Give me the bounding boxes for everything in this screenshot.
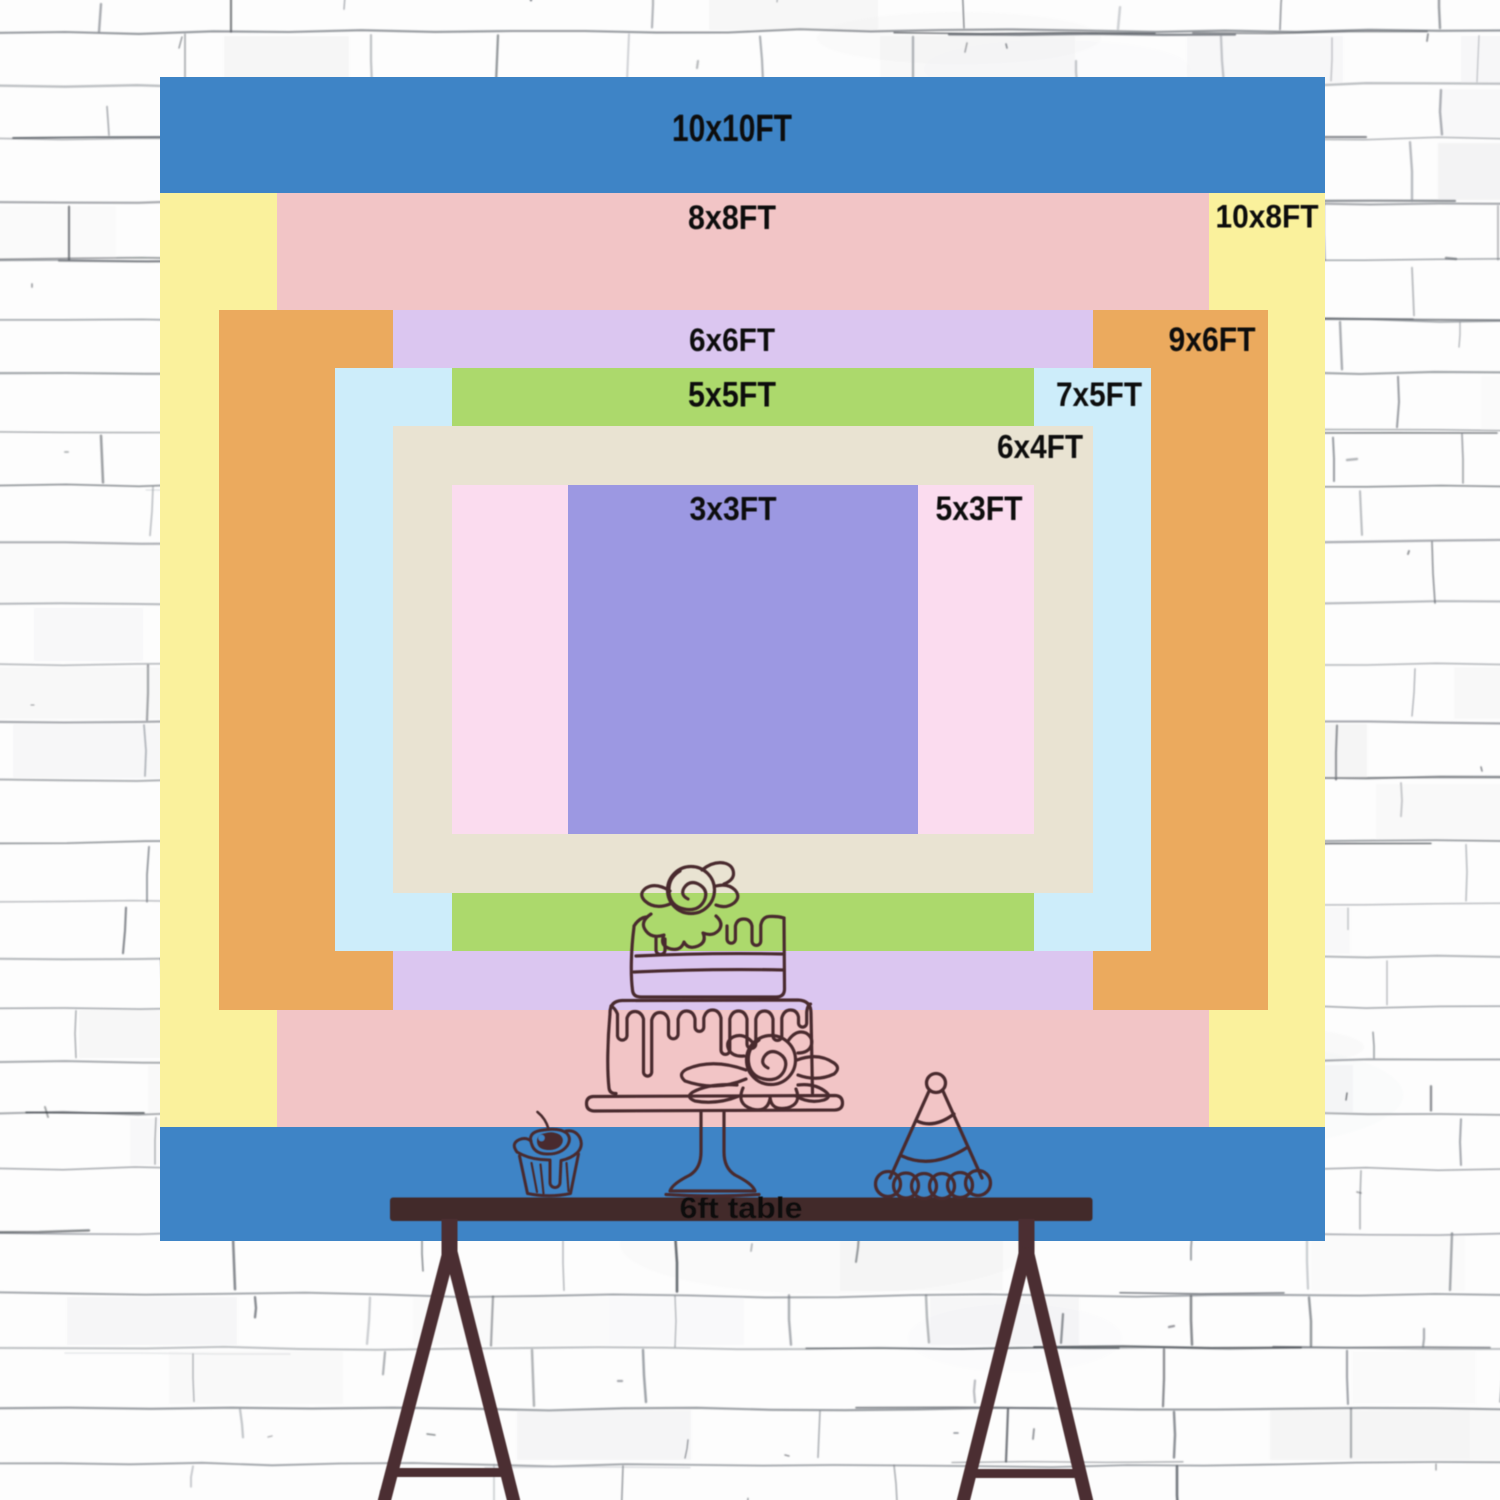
svg-text:9x6FT: 9x6FT <box>1169 321 1256 359</box>
svg-text:5x5FT: 5x5FT <box>688 376 776 415</box>
svg-text:8x8FT: 8x8FT <box>688 199 776 237</box>
svg-text:3x3FT: 3x3FT <box>690 490 777 527</box>
svg-text:6x6FT: 6x6FT <box>689 322 775 358</box>
svg-text:10x8FT: 10x8FT <box>1216 199 1319 235</box>
svg-text:7x5FT: 7x5FT <box>1056 376 1142 414</box>
svg-text:10x10FT: 10x10FT <box>672 108 792 150</box>
svg-text:6x4FT: 6x4FT <box>997 428 1083 465</box>
svg-text:5x3FT: 5x3FT <box>936 490 1023 528</box>
